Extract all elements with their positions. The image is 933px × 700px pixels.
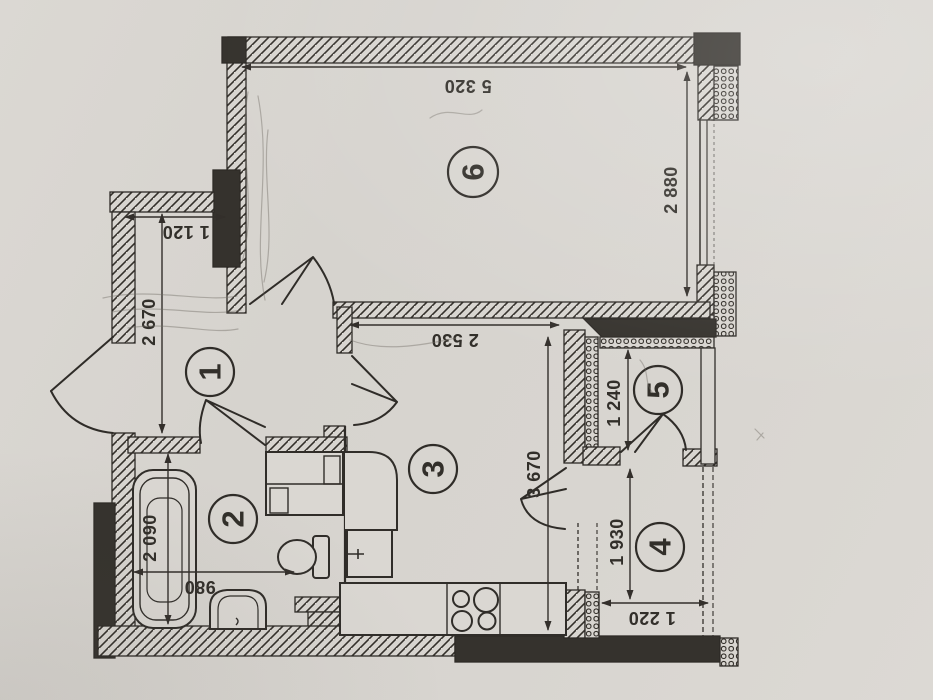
wall-cap-balcony-door [583,447,620,465]
dim-closet-width: 1 120 [162,222,210,242]
dim-living-width: 5 320 [444,76,492,96]
wall-right-lower-insulation [714,272,736,336]
room-number-6: 6 [456,163,491,180]
wall-kitchen-door-stub-top [337,307,352,353]
wall-loggia-top-insulation [600,337,714,348]
wall-bottom-right-insulation [720,638,738,666]
balcony-right-window [703,467,713,638]
dim-kitchen-width: 2 530 [431,330,479,350]
room-badge-bathroom: 2 [209,495,257,543]
bathroom-door [200,400,265,445]
wall-hall-bath-left [128,437,200,453]
kitchen-balcony-window [578,523,597,590]
wall-top-left-block [222,37,246,63]
dim-bathtub-length: 2 090 [140,514,160,562]
room-badge-hallway: 1 [186,348,234,396]
kitchen-corner-counter [345,452,397,530]
dim-kitchen-depth: 3 670 [524,450,544,498]
room-number-3: 3 [416,460,451,477]
room-number-4: 4 [643,538,678,556]
wall-kitchen-loggia-insulation [585,337,598,453]
wall-balcony-left-block [564,590,585,638]
dim-loggia-depth: 1 240 [604,379,624,427]
dim-bath-width: 980 [184,577,216,597]
wall-right-upper [698,65,714,120]
wall-balcony-left-insulation [585,592,599,638]
loggia-door [621,414,686,452]
wall-top-right-insulation [712,66,738,120]
room-numbers: 1 2 3 4 5 6 [186,147,684,571]
dim-balcony-width: 1 220 [628,608,676,628]
room-badge-kitchen: 3 [409,445,457,493]
wall-living-bottom [333,302,710,318]
living-room-window [700,100,714,282]
washing-machine [266,452,343,515]
room-number-2: 2 [216,510,251,527]
wall-kitchen-loggia [564,330,585,463]
wall-hall-living-dark [213,170,240,267]
room-number-1: 1 [193,363,228,380]
washbasin [210,590,266,629]
room-badge-balcony: 4 [636,523,684,571]
entrance-door [51,337,113,433]
scanned-floor-plan: 5 320 2 880 1 120 2 670 2 530 3 670 1 24… [0,0,933,700]
wall-closet-top [110,192,214,212]
room-number-5: 5 [641,381,676,398]
wall-left-upper [112,212,135,343]
wall-loggia-right [701,348,715,464]
fixtures [133,452,566,635]
dim-living-depth: 2 880 [661,166,681,214]
dim-balcony-depth: 1 930 [607,518,627,566]
room-badge-loggia: 5 [634,366,682,414]
dim-hall-depth: 2 670 [139,298,159,346]
kitchen-sink [347,530,392,577]
wall-top [228,37,698,63]
wall-loggia-top-dark [584,319,716,337]
floor-plan-drawing: 5 320 2 880 1 120 2 670 2 530 3 670 1 24… [0,0,933,700]
wall-top-right-block [694,33,740,65]
wall-stub-near-basin-a [295,597,345,612]
wall-bottom-dark [455,636,720,662]
room-badge-living: 6 [448,147,498,197]
wall-hall-bath-right [266,437,347,453]
kitchen-door [352,356,397,425]
